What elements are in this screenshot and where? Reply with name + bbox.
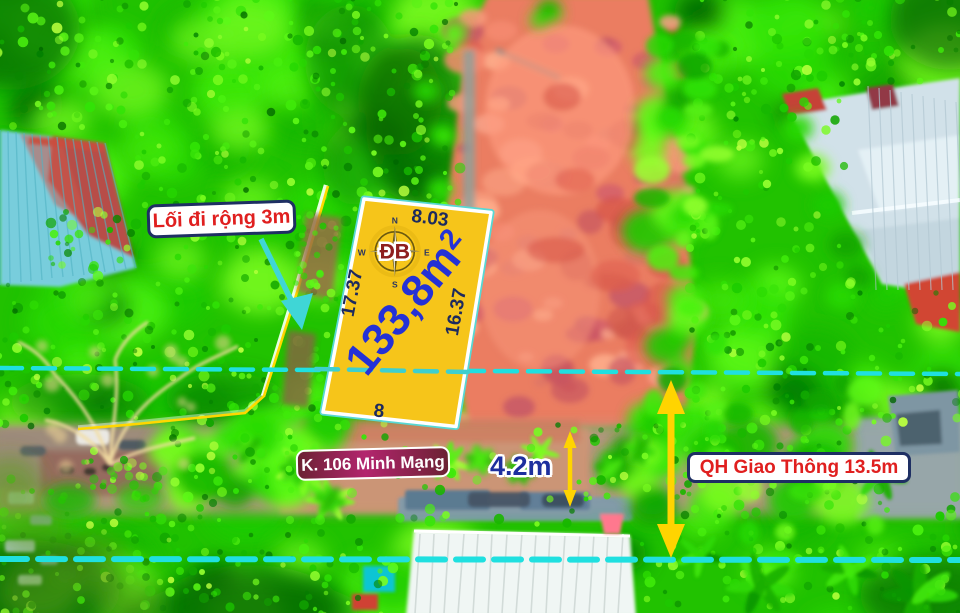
svg-text:8: 8 — [373, 401, 386, 423]
svg-text:W: W — [358, 247, 367, 257]
svg-text:N: N — [392, 215, 398, 225]
svg-text:ĐB: ĐB — [380, 240, 410, 263]
